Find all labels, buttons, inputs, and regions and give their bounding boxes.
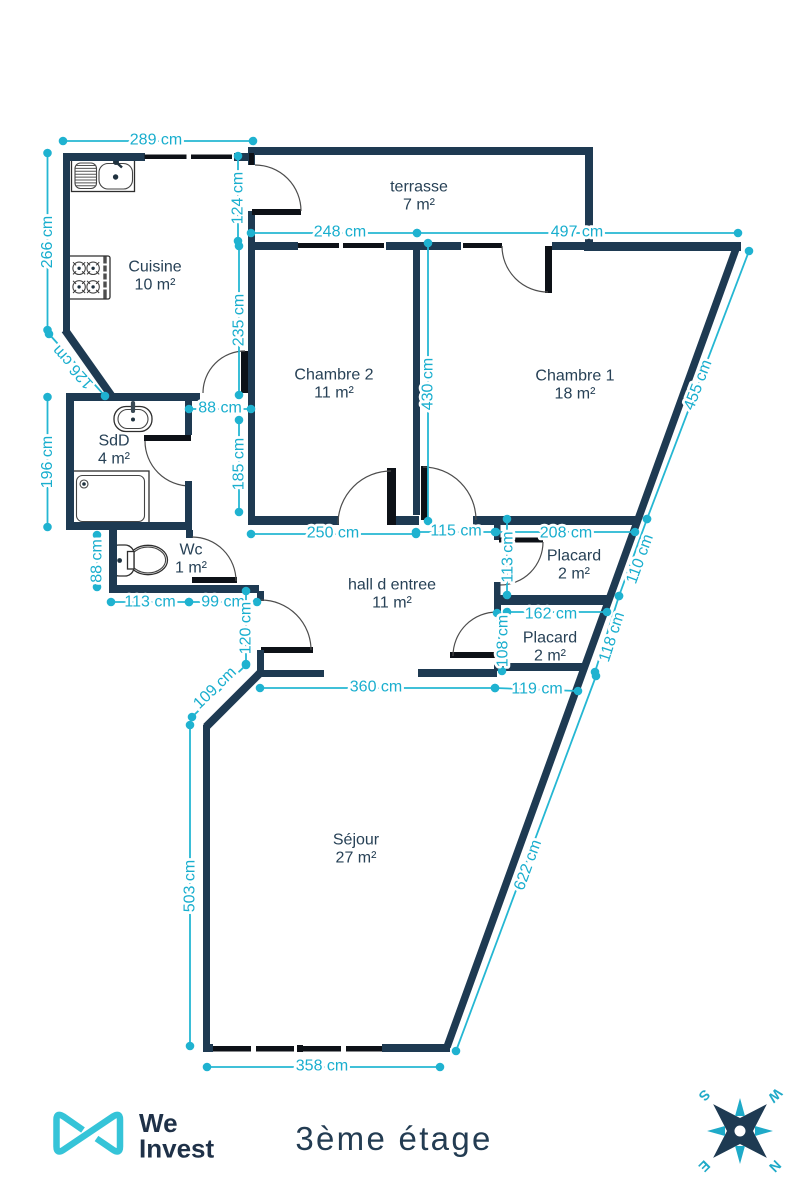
svg-text:Wc: Wc	[179, 542, 202, 559]
svg-text:108 cm: 108 cm	[495, 615, 512, 667]
svg-text:SdD: SdD	[98, 433, 129, 450]
svg-text:196 cm: 196 cm	[39, 436, 56, 488]
svg-text:248 cm: 248 cm	[314, 224, 366, 241]
svg-text:4 m²: 4 m²	[98, 451, 131, 468]
svg-text:124 cm: 124 cm	[230, 172, 247, 224]
svg-text:208 cm: 208 cm	[540, 525, 592, 542]
svg-text:113 cm: 113 cm	[124, 594, 175, 611]
svg-text:2 m²: 2 m²	[558, 566, 591, 583]
svg-text:360 cm: 360 cm	[350, 679, 402, 696]
svg-text:430 cm: 430 cm	[420, 358, 437, 410]
svg-text:11 m²: 11 m²	[314, 385, 354, 402]
svg-text:289 cm: 289 cm	[130, 132, 182, 149]
svg-text:Placard: Placard	[523, 630, 577, 647]
svg-text:497 cm: 497 cm	[551, 224, 603, 241]
svg-text:235 cm: 235 cm	[231, 294, 248, 346]
svg-text:Placard: Placard	[547, 548, 601, 565]
svg-text:Invest: Invest	[139, 1134, 214, 1164]
svg-text:250 cm: 250 cm	[307, 525, 359, 542]
svg-text:18 m²: 18 m²	[555, 386, 597, 403]
svg-text:185 cm: 185 cm	[231, 438, 248, 490]
svg-text:hall d entree: hall d entree	[348, 577, 436, 594]
svg-text:119 cm: 119 cm	[511, 681, 562, 698]
svg-text:358 cm: 358 cm	[296, 1058, 348, 1075]
svg-text:88 cm: 88 cm	[198, 400, 242, 417]
svg-text:115 cm: 115 cm	[430, 523, 481, 540]
svg-text:Séjour: Séjour	[333, 832, 380, 849]
svg-text:88 cm: 88 cm	[89, 539, 106, 583]
svg-text:503 cm: 503 cm	[182, 860, 199, 912]
svg-text:7 m²: 7 m²	[403, 197, 436, 214]
svg-text:Chambre 2: Chambre 2	[294, 367, 373, 384]
svg-text:1 m²: 1 m²	[175, 560, 208, 577]
svg-text:10 m²: 10 m²	[135, 277, 177, 294]
svg-text:2 m²: 2 m²	[534, 648, 567, 665]
svg-text:11 m²: 11 m²	[372, 595, 412, 612]
svg-text:113 cm: 113 cm	[500, 531, 517, 582]
svg-text:Chambre 1: Chambre 1	[535, 368, 614, 385]
svg-text:120 cm: 120 cm	[238, 602, 255, 654]
svg-text:3ème étage: 3ème étage	[295, 1120, 492, 1157]
svg-text:Cuisine: Cuisine	[128, 259, 181, 276]
svg-text:266 cm: 266 cm	[39, 216, 56, 268]
svg-text:terrasse: terrasse	[390, 179, 448, 196]
svg-text:162 cm: 162 cm	[525, 606, 577, 623]
svg-text:27 m²: 27 m²	[336, 850, 378, 867]
